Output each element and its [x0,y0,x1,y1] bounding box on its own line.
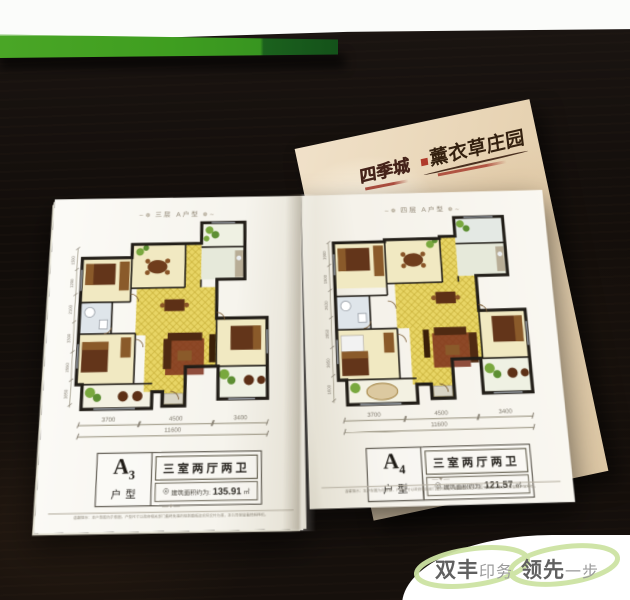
area-row: ◎ 建筑面积约为: 135.91 ㎡ [154,481,258,502]
cover-title-text: 薰衣草庄园 [428,127,526,170]
dim-label: 3850 [63,389,69,399]
open-brochure-spread: ∼❁三层 A户型❁∼ [23,186,576,537]
background-wall [0,0,630,40]
floorplan-a3: 1500 1200 2100 3300 2550 3850 [62,218,282,414]
area-unit: ㎡ [243,486,249,496]
unit-code: A3 [113,457,136,485]
watermark-word: 印务 [479,564,513,581]
watermark-word: 一步 [565,564,599,581]
title-block: 薰衣草庄园 [418,124,529,178]
unit-detail-cell: 三室两厅两卫 ◎ 建筑面积约为: 135.91 ㎡ [151,451,261,505]
dim-label: 2600 [323,300,328,310]
header-ornament-icon: ❁∼ [203,212,217,218]
dim-label: 2850 [324,329,329,339]
dim-label: 1600 [326,384,332,394]
bottom-dimension-chain: 3700 4500 3400 11600 [344,408,535,433]
dim-label: 1900 [322,250,327,260]
dim-label: 1200 [69,278,75,288]
dim-label: 2550 [64,362,70,372]
dim-segment: 4500 [139,416,213,425]
dim-segment: 4500 [404,410,478,420]
dim-segment: 3700 [344,412,405,422]
watermark-word: 领先 [521,559,565,582]
header-ornament-icon: ∼❁ [139,213,153,219]
dim-segment: 3400 [478,408,534,418]
left-page-footer: —✦— 温馨提示：本户型图为示意图，户型尺寸以政府相关部门最终批准的规划图纸及实… [35,502,307,527]
dim-total: 11600 [77,426,268,437]
dim-label: 3300 [66,333,72,343]
red-seal-icon [421,158,429,167]
dim-label: 2100 [67,304,73,314]
unit-type-label: 户型 [106,485,140,502]
rooms-label: 三室两厅两卫 [155,455,258,481]
watermark-word: 双丰 [435,559,479,582]
dim-segment: 3700 [78,417,139,426]
header-ornament-icon: ∼❁ [384,209,398,215]
unit-info-box-a3: A3 户型 三室两厅两卫 ◎ 建筑面积约为: 135.91 ㎡ [95,450,263,507]
bottom-dimension-chain: 3700 4500 3400 11600 [77,415,268,438]
right-page-header-text: 四层 A户型 [400,207,445,214]
info-circle-icon: ◎ [163,489,170,496]
header-ornament-icon: ❁∼ [448,207,462,213]
dim-total: 11600 [344,420,534,433]
photo-scene: 四季城 薰衣草庄园 ∼❁三层 A户型❁∼ [0,0,630,600]
dim-label: 1500 [323,274,328,284]
printer-watermark: 双丰印务领先一步 [412,540,622,594]
rooms-label: 三室两厅两卫 [424,448,528,475]
watermark-text: 双丰印务领先一步 [412,554,622,584]
left-page-header-text: 三层 A户型 [155,212,200,219]
unit-code: A4 [383,451,406,479]
right-page: ∼❁四层 A户型❁∼ [301,190,575,509]
cover-logo-row: 四季城 薰衣草庄园 [356,120,549,190]
area-value: 135.91 [213,486,242,497]
dim-label: 3850 [325,358,331,368]
floorplan-a4: 1900 1500 2600 2850 3850 1600 [321,212,547,410]
area-label: 建筑面积约为: [171,487,210,497]
brand-block: 四季城 [357,152,413,191]
left-page: ∼❁三层 A户型❁∼ [34,196,306,534]
rooms [75,222,268,410]
dim-segment: 3400 [213,415,268,424]
dim-label: 1500 [70,255,76,265]
unit-code-cell: A3 户型 [96,453,153,506]
